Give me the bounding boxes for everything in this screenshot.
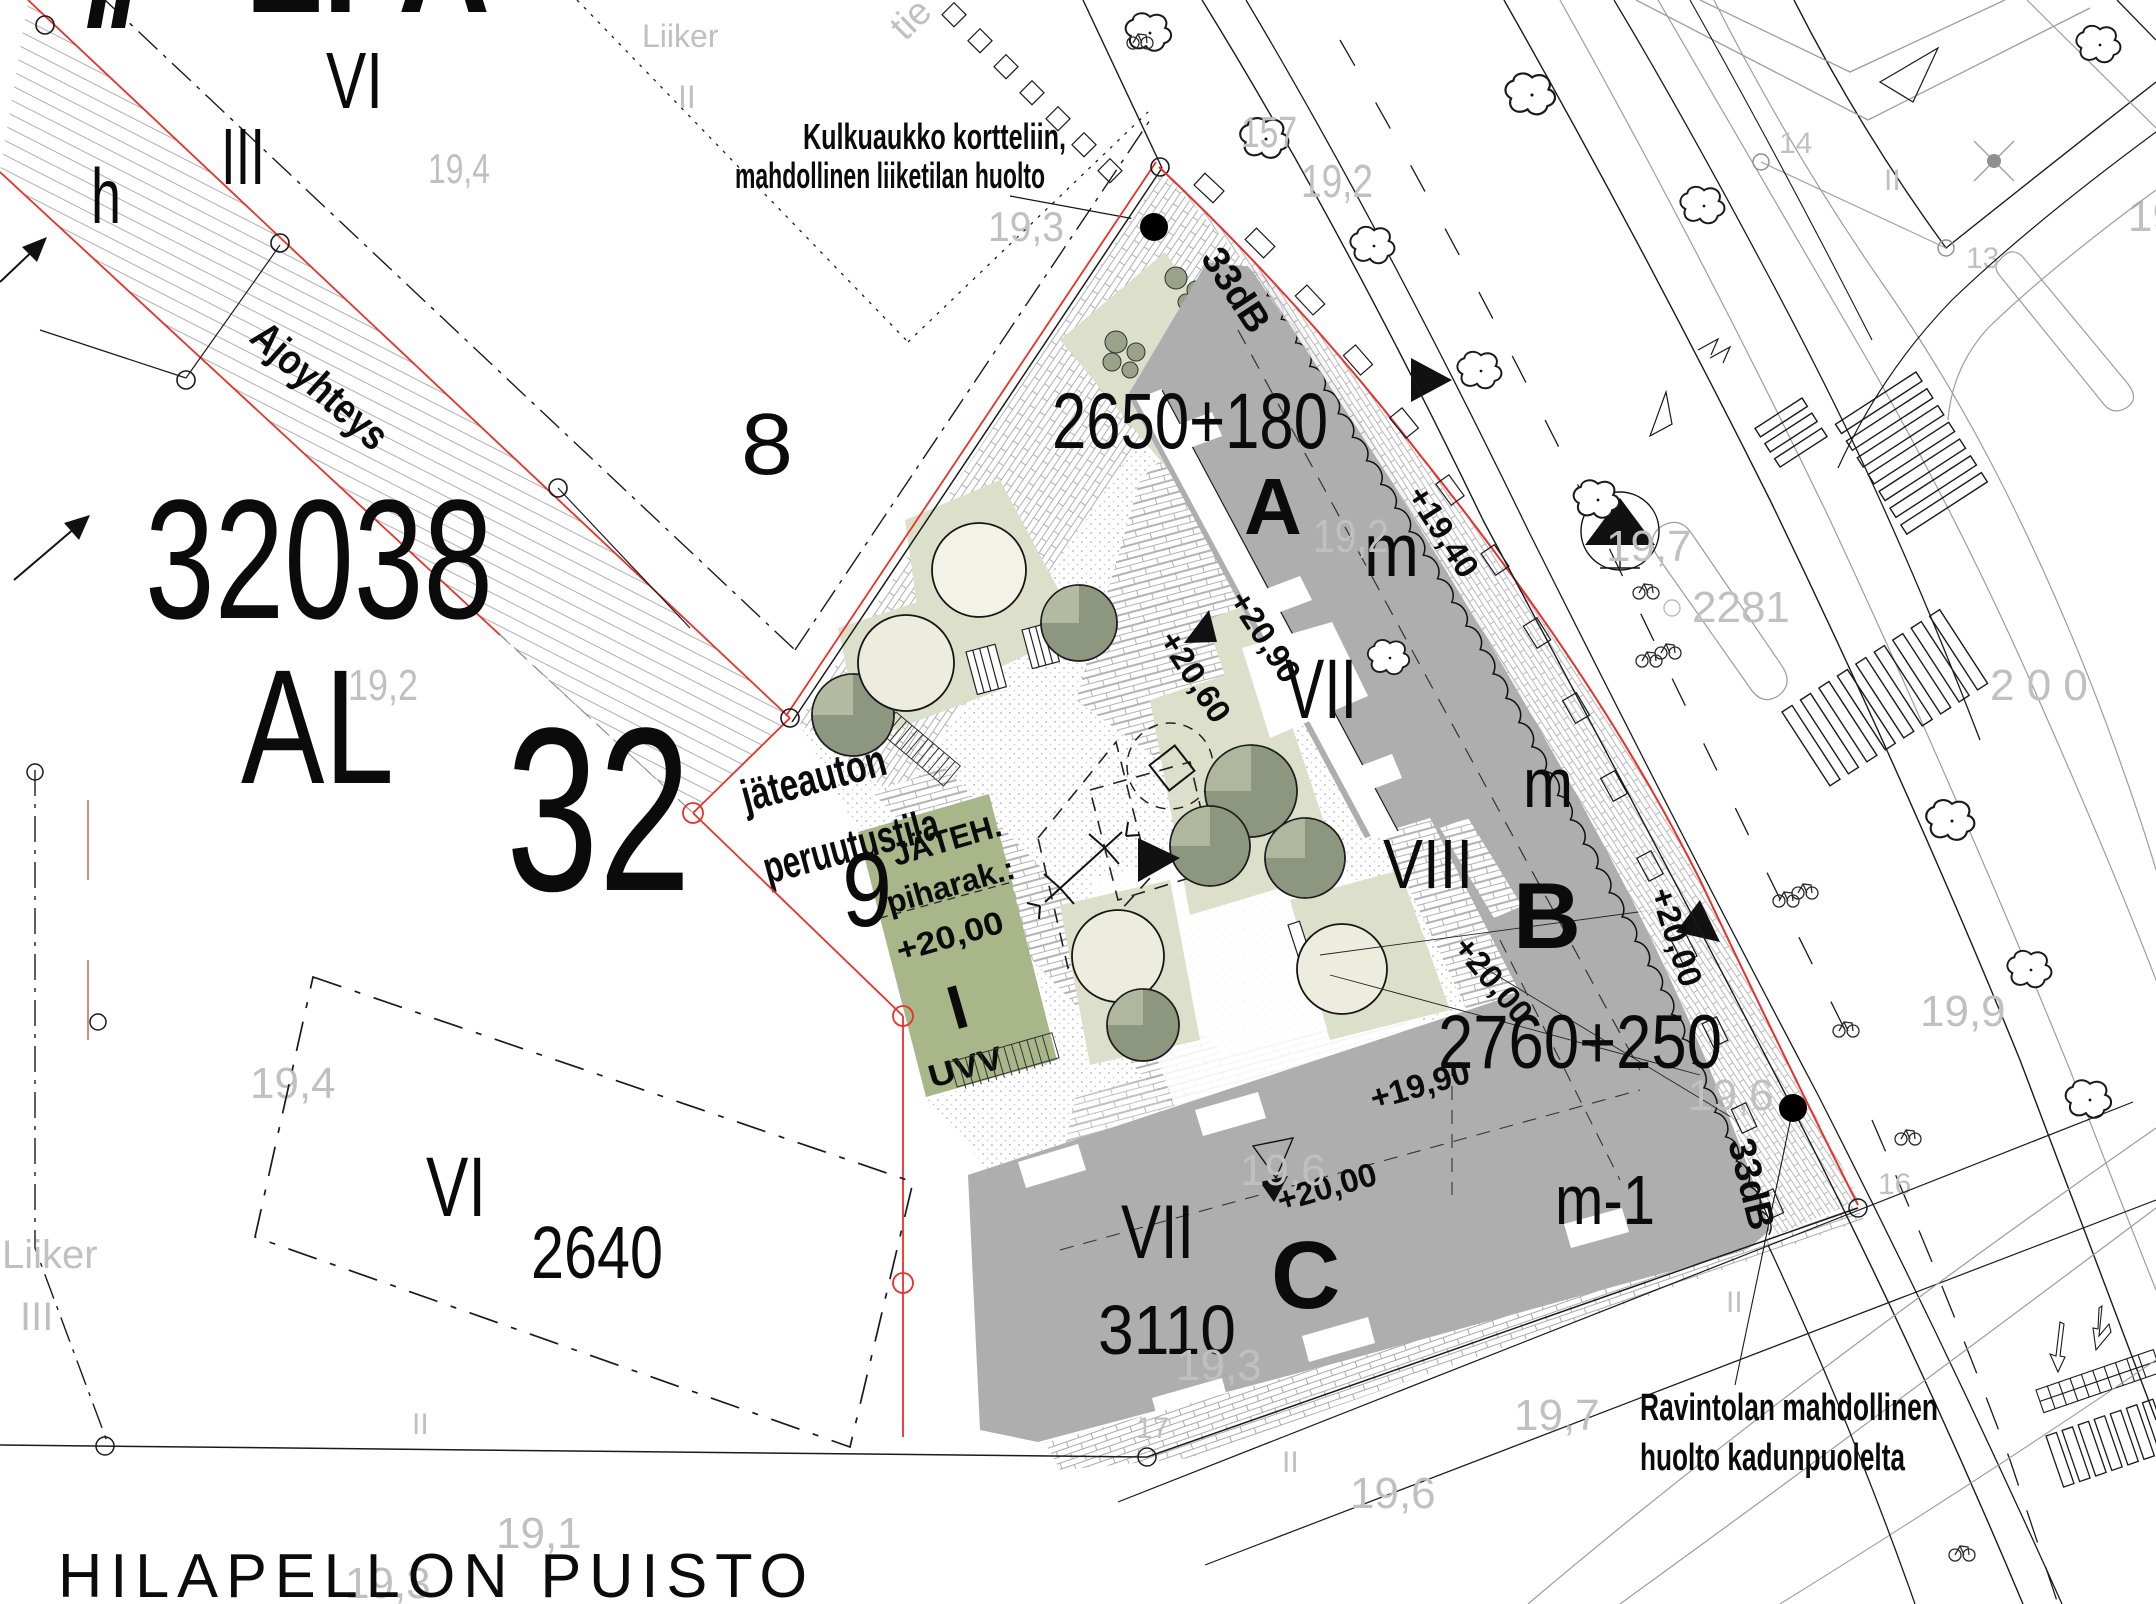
svg-text:17: 17 xyxy=(1136,1412,1169,1445)
svg-text:2281: 2281 xyxy=(1692,583,1790,632)
svg-text:m: m xyxy=(1523,744,1573,822)
svg-text:14: 14 xyxy=(1779,127,1812,160)
svg-text:Kulkuaukko kortteliin,: Kulkuaukko kortteliin, xyxy=(803,116,1066,157)
svg-text:19,6: 19,6 xyxy=(1240,1146,1326,1195)
svg-text:2 0 0: 2 0 0 xyxy=(1990,661,2088,710)
svg-text:B: B xyxy=(1513,863,1581,968)
svg-text:III: III xyxy=(221,112,265,201)
svg-text:HILAPELLON PUISTO: HILAPELLON PUISTO xyxy=(58,1542,815,1604)
svg-text:19,6: 19,6 xyxy=(1688,1071,1774,1120)
svg-text:Ravintolan mahdollinen: Ravintolan mahdollinen xyxy=(1640,1387,1938,1429)
svg-text:19,2: 19,2 xyxy=(348,661,418,710)
svg-text:19: 19 xyxy=(2128,192,2156,241)
svg-text:II: II xyxy=(678,79,696,115)
svg-text:2650+180: 2650+180 xyxy=(1052,376,1328,465)
svg-text:19,7: 19,7 xyxy=(1606,522,1692,571)
svg-text:VI: VI xyxy=(426,1140,486,1234)
svg-text:VIII: VIII xyxy=(1383,825,1473,903)
svg-text:19,4: 19,4 xyxy=(428,145,490,192)
svg-text:II: II xyxy=(1726,1286,1743,1319)
svg-text:32: 32 xyxy=(506,680,691,940)
svg-text:8: 8 xyxy=(741,396,793,493)
svg-text:2640: 2640 xyxy=(531,1211,663,1294)
svg-text:Liiker: Liiker xyxy=(2,1233,98,1277)
svg-text:19,9: 19,9 xyxy=(1920,987,2006,1036)
svg-text:32038: 32038 xyxy=(145,465,493,655)
svg-text:m-1: m-1 xyxy=(1555,1161,1655,1239)
svg-text:II: II xyxy=(1884,164,1901,197)
svg-text:mahdollinen liiketilan huolto: mahdollinen liiketilan huolto xyxy=(735,155,1045,196)
svg-text:II: II xyxy=(1282,1446,1299,1479)
svg-text:h: h xyxy=(91,152,121,240)
svg-text:19,3: 19,3 xyxy=(988,203,1064,250)
svg-text:II: II xyxy=(412,1408,429,1441)
svg-text:19,7: 19,7 xyxy=(1514,1391,1600,1440)
svg-text:13: 13 xyxy=(1966,242,1999,275)
svg-text:VI: VI xyxy=(326,36,383,125)
svg-text:19,6: 19,6 xyxy=(1350,1469,1436,1518)
svg-text:Liiker: Liiker xyxy=(642,18,719,54)
svg-text:A: A xyxy=(1244,462,1302,551)
svg-text:III: III xyxy=(20,1295,53,1339)
svg-text:19,3: 19,3 xyxy=(1176,1341,1262,1390)
svg-text:VII: VII xyxy=(1121,1190,1194,1275)
svg-text:19,2: 19,2 xyxy=(1313,510,1389,562)
svg-text:9: 9 xyxy=(842,832,892,949)
svg-text:19,2: 19,2 xyxy=(1301,155,1373,207)
svg-text:C: C xyxy=(1271,1222,1340,1329)
svg-text:157: 157 xyxy=(1241,108,1297,157)
svg-text:2760+250: 2760+250 xyxy=(1438,1000,1722,1085)
